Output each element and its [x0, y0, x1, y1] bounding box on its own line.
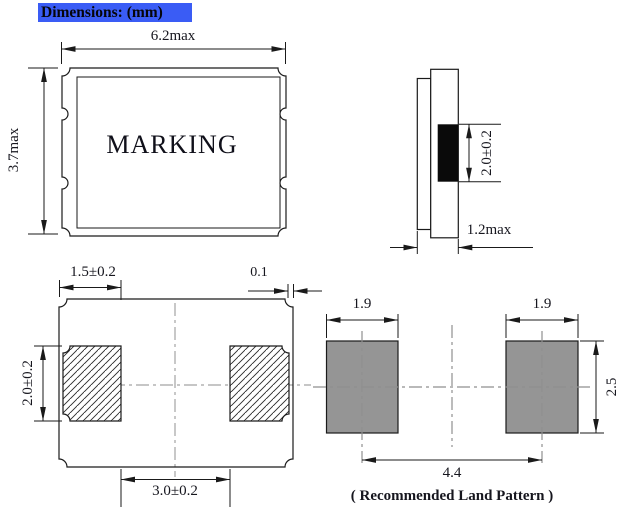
dimension-drawing-page: Dimensions: (mm) 6.2max 3.7max MARKING 2… [0, 0, 633, 512]
top-view-height-dimension-label: 3.7max [6, 110, 22, 190]
side-view-electrode [438, 124, 459, 181]
top-view-marking-label: MARKING [92, 130, 252, 160]
side-view-thickness-dimension-label: 1.2max [449, 222, 529, 238]
technical-drawing-canvas [0, 0, 633, 512]
land-pattern-left-pad-width-label: 1.9 [332, 296, 392, 312]
bottom-view-outline [59, 299, 293, 467]
bottom-view-pad-span-dimension-label: 3.0±0.2 [135, 483, 215, 499]
land-pattern-caption: ( Recommended Land Pattern ) [332, 488, 572, 504]
side-view-outline [417, 69, 458, 238]
land-pattern-pad-height-label: 2.5 [604, 347, 620, 427]
bottom-view-left-pad [63, 346, 121, 421]
bottom-view-right-pad [230, 346, 289, 421]
bottom-view-pad-width-dimension-label: 1.5±0.2 [53, 264, 133, 280]
side-view-electrode-dimension-label: 2.0±0.2 [479, 113, 495, 193]
top-view-width-dimension-label: 6.2max [133, 28, 213, 44]
bottom-view-pad-height-dimension-label: 2.0±0.2 [20, 343, 36, 423]
land-pattern-right-pad-width-label: 1.9 [512, 296, 572, 312]
bottom-view-edge-gap-dimension-label: 0.1 [239, 265, 279, 281]
land-pattern-pitch-label: 4.4 [422, 465, 482, 481]
page-title: Dimensions: (mm) [38, 3, 192, 22]
